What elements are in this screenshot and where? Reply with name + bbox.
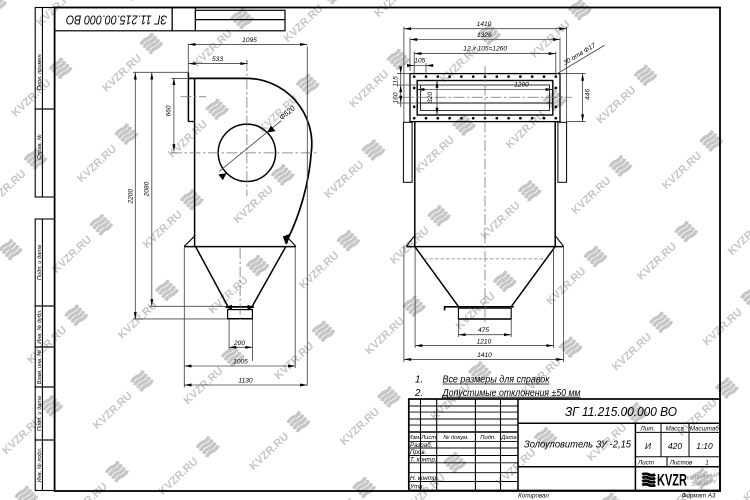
svg-text:Подп. и дата: Подп. и дата	[37, 245, 43, 280]
svg-text:Лист: Лист	[637, 459, 654, 466]
svg-text:Золоуловитель ЗУ -2,15: Золоуловитель ЗУ -2,15	[524, 440, 631, 451]
svg-text:KVZR.RU: KVZR.RU	[635, 240, 679, 282]
svg-text:KVZR.RU: KVZR.RU	[569, 175, 613, 217]
svg-text:Копировал: Копировал	[518, 492, 549, 499]
svg-text:1.: 1.	[415, 375, 423, 386]
svg-text:475: 475	[478, 327, 489, 334]
svg-text:2080: 2080	[144, 181, 151, 197]
svg-text:533: 533	[212, 56, 223, 63]
svg-text:KVZR.RU: KVZR.RU	[322, 159, 366, 201]
svg-text:KVZR.RU: KVZR.RU	[25, 324, 69, 366]
svg-text:1410: 1410	[477, 352, 492, 359]
svg-text:KVZR.RU: KVZR.RU	[75, 143, 119, 185]
svg-text:KVZR.RU: KVZR.RU	[313, 496, 357, 500]
svg-text:1130: 1130	[238, 377, 253, 384]
svg-text:KVZR.RU: KVZR.RU	[297, 249, 341, 291]
svg-text:№ докум.: № докум.	[443, 435, 469, 441]
svg-text:KVZR.RU: KVZR.RU	[347, 68, 391, 110]
svg-text:Разраб.: Разраб.	[410, 442, 432, 449]
svg-text:Подп.: Подп.	[480, 435, 495, 441]
svg-text:420: 420	[668, 441, 682, 451]
svg-text:320: 320	[427, 92, 434, 103]
svg-text:ЗГ 11.215.00.000 ВО: ЗГ 11.215.00.000 ВО	[66, 12, 167, 26]
svg-text:660: 660	[165, 105, 172, 116]
svg-text:Н. контр.: Н. контр.	[410, 475, 438, 482]
svg-text:1200: 1200	[514, 81, 529, 88]
svg-text:30 отв Ф17: 30 отв Ф17	[562, 42, 597, 67]
svg-text:2.: 2.	[414, 388, 423, 399]
svg-text:200: 200	[233, 340, 245, 347]
svg-text:KVZR.RU: KVZR.RU	[701, 306, 745, 348]
svg-text:KVZR.RU: KVZR.RU	[494, 447, 538, 489]
svg-text:KVZR.RU: KVZR.RU	[363, 315, 407, 357]
svg-text:KVZR.RU: KVZR.RU	[0, 258, 4, 300]
svg-text:KVZR.RU: KVZR.RU	[166, 118, 210, 160]
svg-text:Формат А3: Формат А3	[682, 492, 716, 499]
svg-text:Взам. инв. №: Взам. инв. №	[37, 350, 43, 385]
svg-text:Масштаб: Масштаб	[690, 425, 719, 432]
svg-text:KVZR.RU: KVZR.RU	[272, 340, 316, 382]
svg-text:И: И	[645, 441, 652, 451]
svg-text:Дата: Дата	[500, 435, 517, 441]
svg-text:KVZR.RU: KVZR.RU	[50, 234, 94, 276]
svg-text:KVZR.RU: KVZR.RU	[610, 331, 654, 373]
svg-text:Пров.: Пров.	[410, 449, 426, 456]
svg-text:KVZR.RU: KVZR.RU	[742, 462, 750, 500]
svg-text:KVZR.RU: KVZR.RU	[594, 84, 638, 126]
svg-text:1: 1	[705, 459, 708, 466]
svg-text:KVZR.RU: KVZR.RU	[454, 290, 498, 332]
svg-text:KVZR.RU: KVZR.RU	[116, 299, 160, 341]
svg-text:Инв. № дубл.: Инв. № дубл.	[37, 309, 43, 343]
svg-text:1210: 1210	[477, 338, 492, 345]
svg-text:1326: 1326	[477, 32, 492, 39]
svg-text:Масса: Масса	[666, 425, 685, 432]
svg-text:Лист: Лист	[420, 435, 436, 441]
svg-text:KVZR.RU: KVZR.RU	[544, 265, 588, 307]
svg-text:1005: 1005	[233, 359, 248, 366]
svg-text:Т. контр.: Т. контр.	[410, 457, 437, 464]
svg-text:KVZR: KVZR	[657, 472, 687, 490]
svg-text:2200: 2200	[127, 189, 134, 205]
svg-text:KVZR.RU: KVZR.RU	[372, 0, 416, 20]
svg-text:105: 105	[414, 58, 425, 65]
svg-text:KVZR.RU: KVZR.RU	[91, 390, 135, 432]
svg-text:KVZR.RU: KVZR.RU	[660, 150, 704, 192]
svg-text:KVZR.RU: KVZR.RU	[125, 0, 169, 4]
svg-text:Изм.: Изм.	[408, 435, 420, 441]
svg-text:1410: 1410	[477, 21, 492, 28]
svg-text:KVZR.RU: KVZR.RU	[726, 216, 750, 258]
svg-text:Утв.: Утв.	[409, 484, 424, 491]
svg-text:1:10: 1:10	[696, 441, 713, 451]
svg-text:115: 115	[392, 76, 399, 87]
svg-text:Подп. и дата: Подп. и дата	[37, 396, 43, 431]
svg-text:Лит.: Лит.	[640, 425, 656, 432]
svg-text:KVZR.RU: KVZR.RU	[100, 52, 144, 94]
svg-text:ЗГ 11.215.00.000 ВО: ЗГ 11.215.00.000 ВО	[565, 404, 677, 419]
svg-text:KVZR.RU: KVZR.RU	[0, 168, 29, 210]
svg-text:KVZR.RU: KVZR.RU	[338, 406, 382, 448]
svg-text:KVZR.RU: KVZR.RU	[247, 431, 291, 473]
svg-text:Перв. примен.: Перв. примен.	[37, 53, 43, 90]
svg-text:KVZR.RU: KVZR.RU	[282, 3, 326, 45]
svg-text:446: 446	[584, 89, 591, 100]
svg-text:12 х 105=1260: 12 х 105=1260	[463, 46, 507, 53]
svg-text:1095: 1095	[242, 37, 257, 44]
svg-text:KVZR.RU: KVZR.RU	[141, 209, 185, 251]
svg-text:KVZR.RU: KVZR.RU	[10, 77, 54, 119]
svg-text:Листов: Листов	[669, 459, 693, 466]
svg-text:160: 160	[392, 92, 399, 103]
svg-text:Справ. №: Справ. №	[37, 134, 43, 159]
svg-text:KVZR.RU: KVZR.RU	[413, 134, 457, 176]
svg-text:KVZR.RU: KVZR.RU	[232, 184, 276, 226]
svg-text:Инв. № подл.: Инв. № подл.	[37, 448, 43, 483]
svg-text:KVZR.RU: KVZR.RU	[182, 365, 226, 407]
